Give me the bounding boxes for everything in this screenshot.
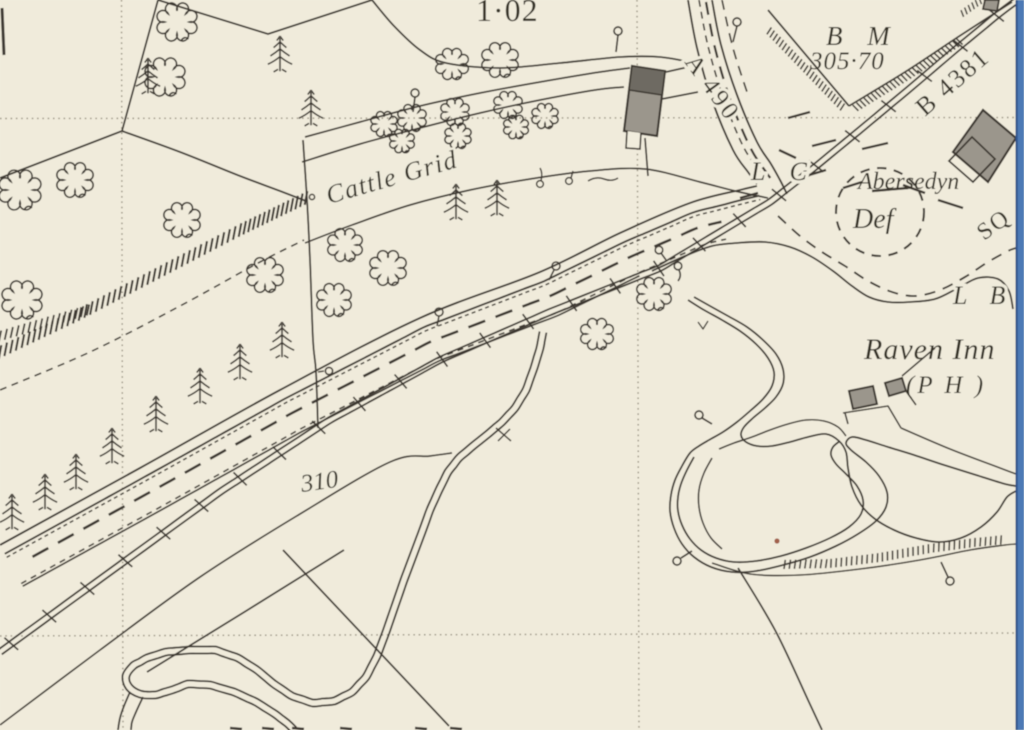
svg-text:(P H ): (P H )	[906, 372, 986, 399]
svg-text:1·02: 1·02	[476, 0, 539, 28]
svg-text:305·70: 305·70	[809, 48, 885, 75]
svg-text:Raven Inn: Raven Inn	[863, 333, 995, 366]
svg-text:L B: L B	[952, 281, 1013, 310]
svg-text:310: 310	[298, 466, 340, 498]
svg-text:B M: B M	[826, 21, 899, 51]
svg-text:Def: Def	[852, 204, 897, 235]
svg-text:Abersedyn: Abersedyn	[856, 169, 959, 195]
svg-text:L C: L C	[750, 157, 816, 186]
